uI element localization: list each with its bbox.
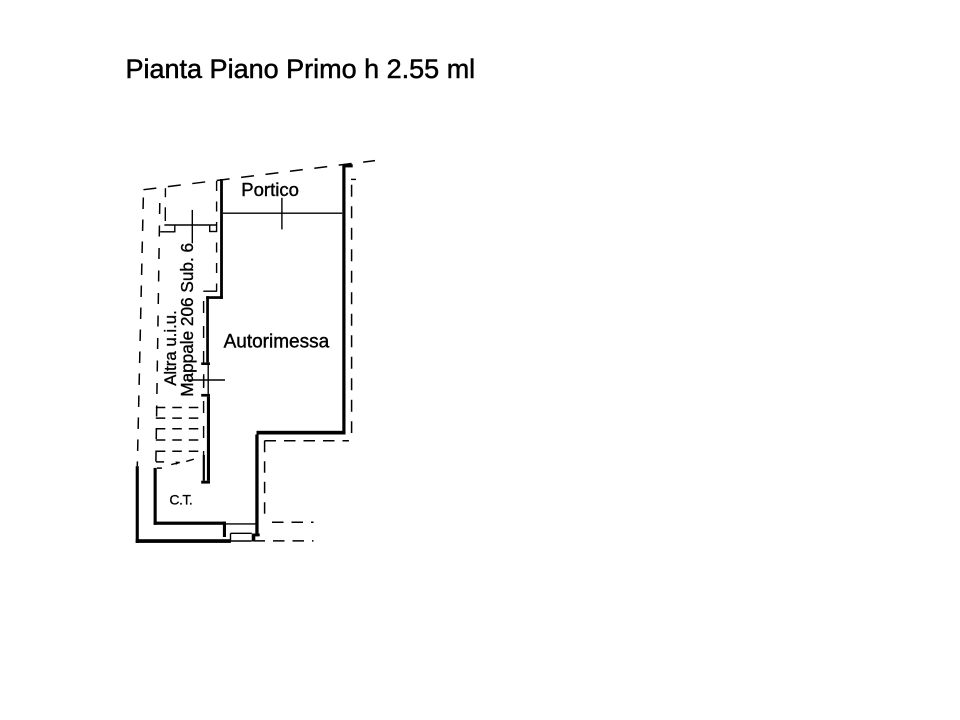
svg-text:Mappale 206 Sub. 6: Mappale 206 Sub. 6 [177, 243, 197, 397]
svg-text:C.T.: C.T. [169, 491, 192, 507]
svg-text:Autorimessa: Autorimessa [224, 332, 330, 353]
svg-text:Pianta Piano Primo h 2.55 ml: Pianta Piano Primo h 2.55 ml [126, 54, 476, 84]
svg-text:Portico: Portico [241, 179, 299, 200]
